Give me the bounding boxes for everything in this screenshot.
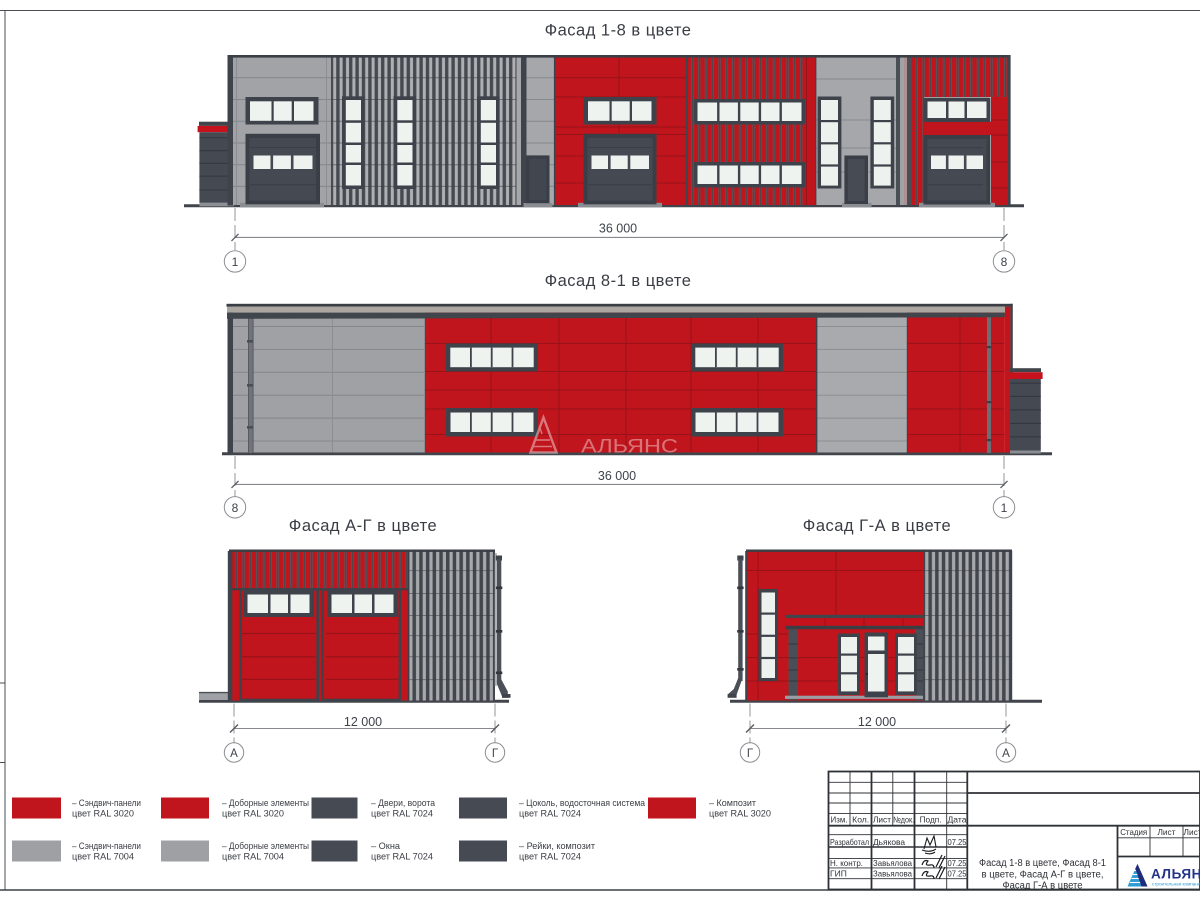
svg-text:Фасад 1-8 в цвете, Фасад 8-1: Фасад 1-8 в цвете, Фасад 8-1 [979, 858, 1106, 869]
svg-text:Лист: Лист [1158, 827, 1176, 837]
svg-text:Завьялова: Завьялова [873, 869, 912, 879]
svg-text:8: 8 [1001, 255, 1008, 269]
svg-text:цвет RAL 7004: цвет RAL 7004 [222, 852, 284, 863]
svg-text:1: 1 [232, 255, 239, 269]
svg-text:– Двери, ворота: – Двери, ворота [371, 798, 436, 809]
svg-text:– Доборные элементы: – Доборные элементы [222, 798, 309, 809]
svg-text:цвет RAL 7024: цвет RAL 7024 [371, 852, 433, 863]
svg-text:Фасад Г-А в цвете: Фасад Г-А в цвете [803, 517, 951, 535]
svg-text:– Композит: – Композит [709, 798, 757, 809]
svg-text:07.25: 07.25 [948, 869, 967, 879]
svg-text:в цвете, Фасад А-Г в цвете,: в цвете, Фасад А-Г в цвете, [982, 870, 1104, 881]
svg-text:Г: Г [747, 748, 754, 760]
svg-text:Фасад А-Г в цвете: Фасад А-Г в цвете [289, 517, 437, 535]
svg-text:Стадия: Стадия [1120, 827, 1147, 837]
svg-text:цвет RAL 7024: цвет RAL 7024 [371, 809, 433, 820]
svg-text:– Доборные элементы: – Доборные элементы [222, 841, 309, 852]
svg-text:07.25: 07.25 [948, 858, 967, 868]
svg-text:А: А [1002, 748, 1010, 760]
svg-text:– Окна: – Окна [371, 841, 401, 852]
svg-text:Дата: Дата [948, 815, 967, 825]
svg-text:цвет RAL 7024: цвет RAL 7024 [519, 852, 581, 863]
svg-text:Завьялова: Завьялова [873, 858, 912, 868]
svg-text:строительная компания: строительная компания [1152, 882, 1200, 887]
svg-text:АЛЬЯНС: АЛЬЯНС [1151, 867, 1200, 882]
svg-text:1: 1 [1001, 501, 1008, 515]
svg-text:цвет RAL 7004: цвет RAL 7004 [72, 852, 134, 863]
svg-text:А: А [230, 748, 238, 760]
svg-text:12 000: 12 000 [344, 715, 382, 729]
svg-text:Лист: Лист [873, 815, 891, 825]
svg-text:12 000: 12 000 [858, 715, 896, 729]
svg-text:– Сэндвич-панели: – Сэндвич-панели [72, 798, 141, 809]
svg-text:цвет RAL 7024: цвет RAL 7024 [519, 809, 581, 820]
svg-text:цвет RAL 3020: цвет RAL 3020 [222, 809, 284, 820]
svg-text:– Цоколь, водосточная система: – Цоколь, водосточная система [519, 798, 646, 809]
svg-text:Фасад 8-1 в цвете: Фасад 8-1 в цвете [545, 272, 692, 290]
svg-text:Подп.: Подп. [920, 815, 942, 825]
svg-text:Г: Г [492, 748, 499, 760]
svg-text:АЛЬЯНС: АЛЬЯНС [581, 437, 678, 458]
svg-text:Фасад Г-А в цвете: Фасад Г-А в цвете [1003, 881, 1083, 892]
svg-text:36 000: 36 000 [599, 222, 637, 236]
svg-text:8: 8 [232, 501, 239, 515]
svg-text:Фасад 1-8 в цвете: Фасад 1-8 в цвете [545, 22, 692, 40]
svg-text:– Рейки, композит: – Рейки, композит [519, 841, 596, 852]
svg-text:Изм.: Изм. [831, 815, 848, 825]
svg-text:цвет RAL 3020: цвет RAL 3020 [709, 809, 771, 820]
svg-text:Разработал: Разработал [830, 837, 869, 847]
svg-text:Листов: Листов [1184, 827, 1200, 837]
svg-text:цвет RAL 3020: цвет RAL 3020 [72, 809, 134, 820]
svg-text:07.25: 07.25 [948, 837, 967, 847]
svg-text:36 000: 36 000 [598, 469, 636, 483]
svg-text:Кол.: Кол. [852, 815, 869, 825]
svg-text:№док.: №док. [893, 815, 914, 825]
svg-text:ГИП: ГИП [830, 869, 847, 879]
svg-text:Н. контр.: Н. контр. [830, 858, 863, 868]
svg-text:Дьякова: Дьякова [873, 837, 905, 847]
svg-text:– Сэндвич-панели: – Сэндвич-панели [72, 841, 141, 852]
